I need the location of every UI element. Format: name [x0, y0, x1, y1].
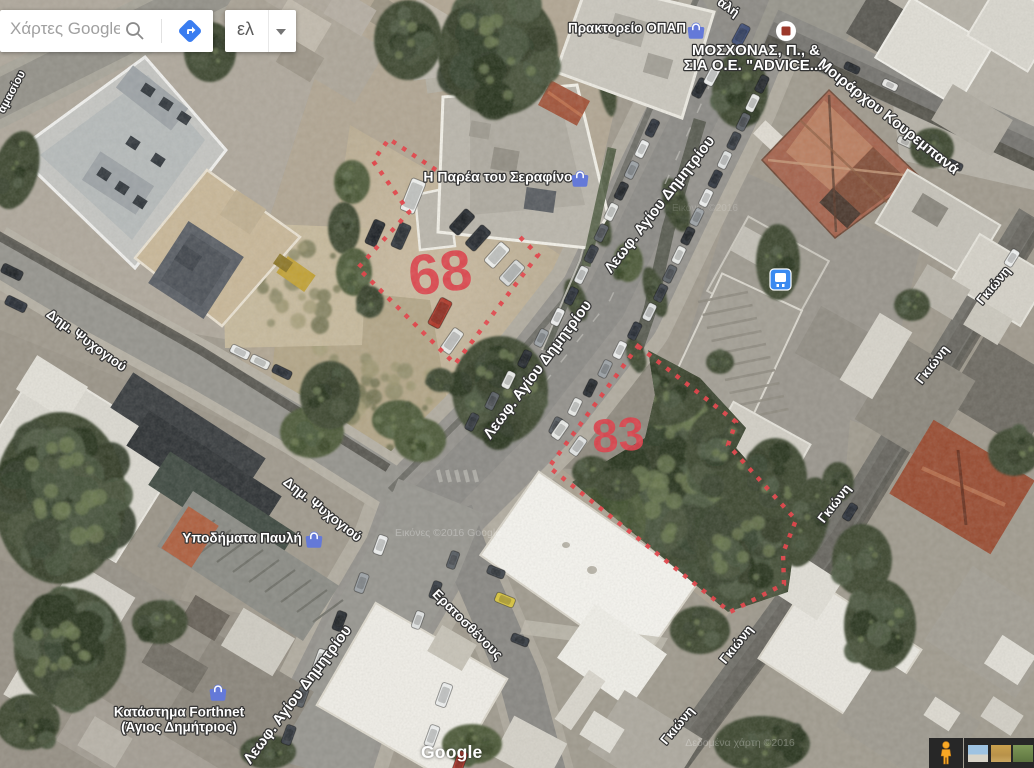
- svg-text:Υποδήματα Παυλή: Υποδήματα Παυλή: [182, 531, 302, 546]
- svg-text:Κατάστημα Forthnet: Κατάστημα Forthnet: [114, 705, 245, 720]
- svg-text:Δεδομένα χάρτη ©2016: Δεδομένα χάρτη ©2016: [685, 737, 795, 749]
- svg-text:Η Παρέα του Σεραφίνο: Η Παρέα του Σεραφίνο: [423, 169, 572, 185]
- svg-text:ΣΙΑ Ο.Ε. "ADVICE...: ΣΙΑ Ο.Ε. "ADVICE...: [684, 57, 823, 74]
- svg-text:Εικόνες ©2016: Εικόνες ©2016: [672, 202, 738, 214]
- svg-text:Εικόνες ©2016 Google: Εικόνες ©2016 Google: [395, 527, 501, 539]
- svg-text:(Άγιος Δημήτριος): (Άγιος Δημήτριος): [121, 720, 237, 735]
- svg-text:Πρακτορείο ΟΠΑΠ: Πρακτορείο ΟΠΑΠ: [568, 21, 686, 36]
